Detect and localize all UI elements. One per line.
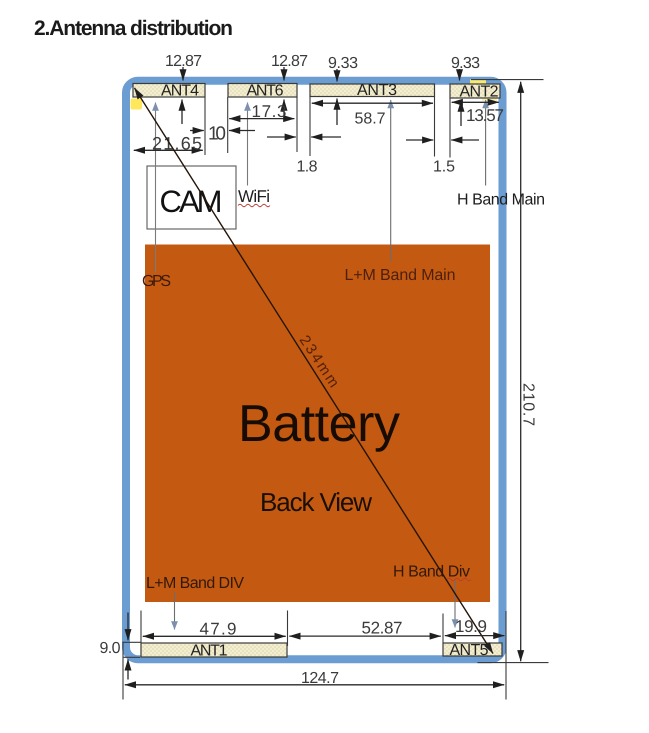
- svg-text:9.0: 9.0: [100, 640, 121, 657]
- svg-text:1.5: 1.5: [433, 159, 455, 176]
- svg-text:ANT4: ANT4: [161, 83, 199, 100]
- svg-text:GPS: GPS: [142, 273, 171, 290]
- svg-text:H Band Div: H Band Div: [393, 564, 470, 581]
- svg-text:124.7: 124.7: [301, 670, 339, 687]
- svg-text:H Band Main: H Band Main: [457, 192, 545, 209]
- svg-text:12.87: 12.87: [271, 53, 308, 70]
- svg-text:L+M Band Main: L+M Band Main: [345, 267, 456, 284]
- svg-text:Battery: Battery: [238, 395, 400, 453]
- svg-text:17.3: 17.3: [252, 102, 287, 121]
- svg-text:ANT3: ANT3: [357, 82, 397, 99]
- svg-text:10: 10: [208, 124, 226, 145]
- svg-text:210.7: 210.7: [520, 383, 537, 426]
- svg-text:13.57: 13.57: [466, 106, 504, 125]
- svg-text:9.33: 9.33: [328, 55, 358, 72]
- svg-text:Back View: Back View: [260, 487, 372, 517]
- svg-text:9.33: 9.33: [451, 55, 480, 72]
- svg-text:2.Antenna distribution: 2.Antenna distribution: [34, 17, 233, 40]
- svg-text:WiFi: WiFi: [238, 187, 270, 206]
- svg-text:47.9: 47.9: [200, 620, 237, 639]
- svg-text:58.7: 58.7: [355, 111, 386, 128]
- svg-text:19.9: 19.9: [455, 617, 487, 636]
- svg-text:CAM: CAM: [160, 184, 223, 219]
- svg-text:ANT2: ANT2: [460, 84, 499, 101]
- svg-text:ANT1: ANT1: [191, 643, 228, 660]
- svg-text:1.8: 1.8: [297, 159, 318, 176]
- svg-text:52.87: 52.87: [362, 619, 403, 638]
- svg-text:21.65: 21.65: [152, 134, 202, 154]
- svg-text:12.87: 12.87: [165, 53, 202, 70]
- svg-text:ANT5: ANT5: [450, 642, 489, 659]
- svg-text:L+M Band DIV: L+M Band DIV: [146, 575, 244, 592]
- svg-text:ANT6: ANT6: [247, 83, 284, 100]
